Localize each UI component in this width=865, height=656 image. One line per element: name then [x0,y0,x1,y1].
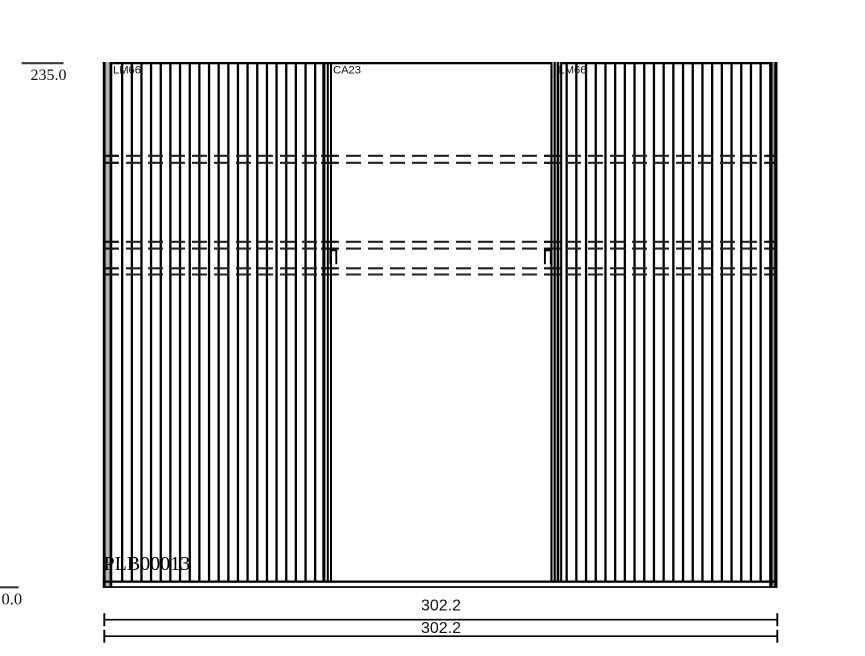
svg-text:PLB00013: PLB00013 [104,553,191,575]
svg-text:LM66: LM66 [113,65,141,77]
svg-text:302.2: 302.2 [421,598,461,615]
svg-text:CA23: CA23 [333,65,361,77]
svg-text:0.0: 0.0 [2,589,23,608]
svg-text:302.2: 302.2 [421,620,461,637]
svg-text:235.0: 235.0 [31,67,67,84]
svg-text:LM66: LM66 [559,65,587,77]
